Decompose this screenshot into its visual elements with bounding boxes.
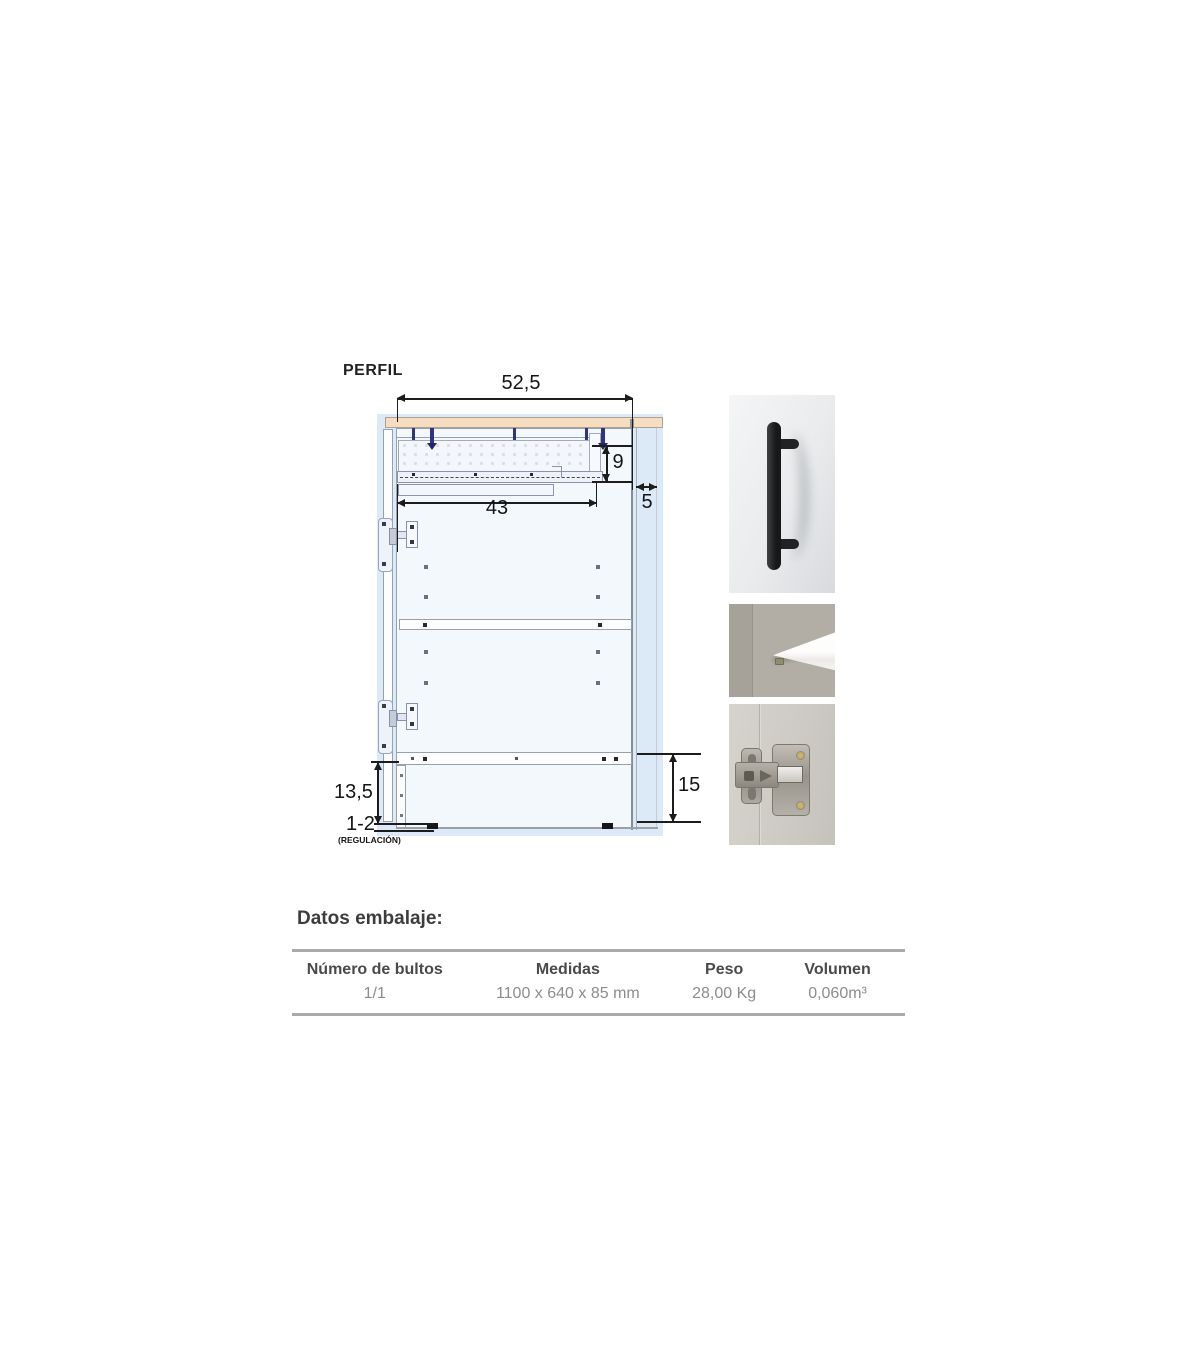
shelf-pin-photo xyxy=(729,604,835,697)
dot-mark xyxy=(614,757,618,761)
dot-mark xyxy=(530,473,533,476)
dim-extension xyxy=(596,481,597,507)
dim-plinth-total: 15 xyxy=(678,774,700,797)
col-header-medidas: Medidas xyxy=(458,961,679,979)
hinge-body xyxy=(735,762,779,788)
dim-tick xyxy=(592,481,632,483)
hinge-screw xyxy=(796,751,805,760)
arrow-left-icon xyxy=(397,499,405,507)
dim-extension xyxy=(397,398,398,422)
cross-mark xyxy=(424,681,428,685)
dim-drawer-height: 9 xyxy=(608,451,628,474)
dim-total-width: 52,5 xyxy=(490,372,552,395)
black-bar-handle-photo xyxy=(729,395,835,593)
cabinet-foot xyxy=(602,823,613,829)
arrow-up-icon xyxy=(374,762,382,770)
dim-leg-adjust-note: (REGULACIÓN) xyxy=(338,835,401,845)
hinge-detail xyxy=(744,771,754,781)
table-header-row: Número de bultos Medidas Peso Volumen xyxy=(292,961,905,979)
dim-runner-length: 43 xyxy=(477,497,517,520)
arrow-down-icon xyxy=(602,474,610,482)
shelf-board xyxy=(771,628,835,672)
plinth-board xyxy=(396,765,406,828)
dot-mark xyxy=(382,704,386,708)
slide-hook xyxy=(552,466,562,477)
hinge-cup xyxy=(389,528,397,545)
door-front xyxy=(383,429,393,822)
col-header-bultos: Número de bultos xyxy=(292,961,458,979)
handle-post xyxy=(779,539,799,549)
dim-tick xyxy=(374,823,434,825)
packaging-heading: Datos embalaje: xyxy=(297,908,443,930)
hinge-door-bracket xyxy=(378,518,393,572)
cross-mark xyxy=(424,650,428,654)
value-bultos: 1/1 xyxy=(292,985,458,1003)
dim-line xyxy=(397,398,633,400)
dot-mark xyxy=(410,707,414,711)
cross-mark xyxy=(596,650,600,654)
diagram-title: PERFIL xyxy=(343,362,403,380)
handle-post xyxy=(779,439,799,449)
dot-mark xyxy=(474,473,477,476)
hinge-slot xyxy=(748,787,756,800)
worktop-screw xyxy=(430,428,434,443)
arrow-right-icon xyxy=(649,483,657,491)
dot-mark xyxy=(400,774,403,777)
dim-back-gap: 5 xyxy=(638,491,656,514)
dim-tick xyxy=(592,445,632,447)
dot-mark xyxy=(423,757,427,761)
dot-mark xyxy=(400,814,403,817)
value-peso: 28,00 Kg xyxy=(678,985,770,1003)
worktop-screw-head xyxy=(427,443,437,450)
dot-mark xyxy=(382,562,386,566)
wall-corner xyxy=(729,604,753,697)
worktop-screw xyxy=(585,428,588,440)
dim-extension xyxy=(397,484,398,552)
arrow-down-icon xyxy=(669,814,677,822)
arrow-left-icon xyxy=(636,483,644,491)
hinge-cup xyxy=(389,710,397,727)
arrow-left-icon xyxy=(397,394,405,402)
cross-mark xyxy=(424,595,428,599)
hinge-detail xyxy=(760,770,772,782)
value-medidas: 1100 x 640 x 85 mm xyxy=(458,985,679,1003)
dot-mark xyxy=(410,525,414,529)
dot-mark xyxy=(382,744,386,748)
cross-mark xyxy=(424,565,428,569)
dot-mark xyxy=(602,757,606,761)
col-header-volumen: Volumen xyxy=(770,961,905,979)
dim-tick xyxy=(374,830,434,832)
hinge-plate xyxy=(406,703,418,730)
dot-mark xyxy=(412,473,415,476)
dim-plinth-height: 13,5 xyxy=(334,781,373,804)
value-volumen: 0,060m³ xyxy=(770,985,905,1003)
arrow-up-icon xyxy=(669,754,677,762)
worktop-screw xyxy=(412,428,415,440)
drawer-slide xyxy=(397,471,603,483)
dim-extension xyxy=(632,398,633,490)
hinge-screw xyxy=(796,801,805,810)
hinge-plate xyxy=(406,521,418,548)
cross-mark xyxy=(596,681,600,685)
packaging-table: Número de bultos Medidas Peso Volumen 1/… xyxy=(292,949,905,1016)
middle-shelf xyxy=(399,619,632,630)
drawer-top-line xyxy=(396,437,592,438)
dim-leg-adjust: 1-2 xyxy=(346,813,375,836)
dot-mark xyxy=(515,757,518,760)
hinge-door-bracket xyxy=(378,700,393,754)
dot-mark xyxy=(411,757,414,760)
hinge-arm-bright xyxy=(777,766,803,783)
countertop xyxy=(385,417,663,428)
col-header-peso: Peso xyxy=(678,961,770,979)
table-value-row: 1/1 1100 x 640 x 85 mm 28,00 Kg 0,060m³ xyxy=(292,979,905,1003)
cross-mark xyxy=(596,595,600,599)
handle-bar xyxy=(767,422,781,570)
dot-mark xyxy=(410,540,414,544)
dim-line xyxy=(672,754,674,822)
shelf-pin xyxy=(775,658,784,665)
dot-mark xyxy=(410,722,414,726)
dot-mark xyxy=(423,623,427,627)
concealed-hinge-photo xyxy=(729,704,835,845)
dot-mark xyxy=(598,623,602,627)
dot-mark xyxy=(400,794,403,797)
dim-line xyxy=(377,762,379,824)
worktop-screw xyxy=(601,428,605,443)
bottom-panel xyxy=(396,752,632,765)
page: PERFIL xyxy=(0,0,1200,1372)
slide-extension xyxy=(398,484,554,496)
cross-mark xyxy=(596,565,600,569)
slide-dash-line xyxy=(400,477,600,478)
worktop-screw xyxy=(513,428,516,440)
dot-mark xyxy=(382,522,386,526)
